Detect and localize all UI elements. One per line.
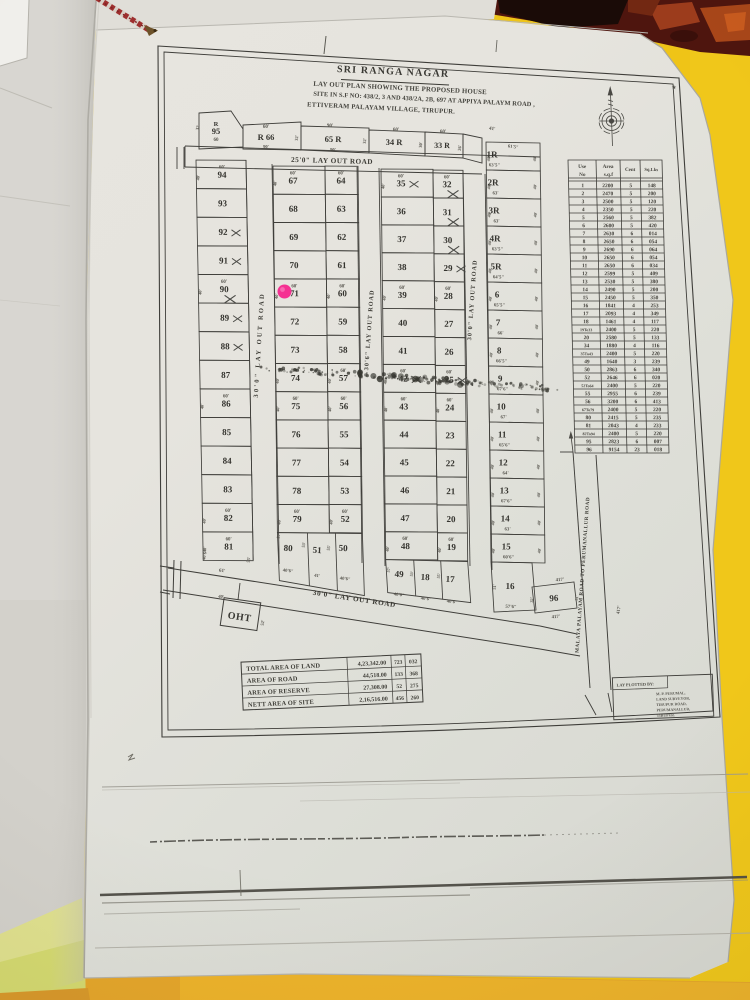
svg-text:40': 40': [276, 519, 281, 525]
svg-text:32: 32: [442, 179, 452, 189]
svg-text:40': 40': [199, 403, 204, 409]
svg-text:60': 60': [342, 510, 348, 515]
svg-text:235: 235: [653, 415, 661, 421]
svg-text:30': 30': [418, 142, 423, 148]
svg-text:5: 5: [633, 335, 636, 341]
svg-text:2650: 2650: [604, 255, 615, 261]
svg-text:3: 3: [634, 359, 637, 365]
svg-text:420: 420: [649, 223, 657, 229]
svg-text:5: 5: [632, 287, 635, 293]
svg-text:94: 94: [217, 170, 227, 180]
svg-text:40': 40': [535, 436, 541, 442]
svg-text:6: 6: [634, 367, 637, 373]
svg-text:16: 16: [505, 581, 515, 591]
svg-text:71: 71: [290, 288, 300, 298]
svg-text:82: 82: [224, 513, 234, 523]
svg-text:96: 96: [549, 593, 559, 603]
svg-text:2043: 2043: [608, 423, 619, 429]
svg-text:40': 40': [327, 378, 332, 384]
svg-text:2350: 2350: [603, 207, 614, 213]
svg-text:2200: 2200: [602, 183, 613, 189]
svg-text:96: 96: [586, 447, 592, 453]
svg-text:220: 220: [651, 327, 659, 333]
svg-text:53': 53': [409, 571, 415, 577]
svg-text:349: 349: [651, 311, 659, 317]
svg-text:40': 40': [536, 520, 542, 526]
svg-text:64: 64: [336, 175, 346, 185]
svg-text:60': 60': [291, 284, 297, 289]
svg-text:14: 14: [501, 513, 511, 523]
svg-text:2823: 2823: [608, 439, 619, 445]
svg-text:40': 40': [201, 518, 206, 524]
svg-text:86: 86: [222, 398, 232, 408]
svg-text:6: 6: [634, 375, 637, 381]
svg-text:63': 63': [504, 527, 510, 532]
svg-text:220: 220: [648, 207, 656, 213]
svg-text:56: 56: [585, 399, 591, 405]
svg-text:3: 3: [582, 199, 585, 205]
svg-text:21: 21: [446, 486, 456, 496]
svg-text:55': 55': [246, 556, 252, 563]
svg-text:82To94: 82To94: [582, 431, 594, 436]
svg-text:40': 40': [532, 212, 538, 218]
svg-text:5: 5: [629, 191, 632, 197]
svg-text:34: 34: [584, 343, 590, 349]
svg-text:2490: 2490: [605, 287, 616, 293]
svg-text:55': 55': [326, 545, 332, 551]
svg-text:2400: 2400: [606, 327, 617, 333]
svg-text:64': 64': [502, 471, 508, 476]
svg-text:018: 018: [654, 447, 662, 453]
svg-text:60': 60': [444, 175, 450, 180]
svg-text:95: 95: [586, 439, 592, 445]
svg-text:46: 46: [400, 485, 410, 495]
svg-text:40': 40': [533, 296, 539, 302]
svg-text:52: 52: [396, 684, 402, 690]
svg-text:148: 148: [648, 183, 656, 189]
svg-text:73: 73: [290, 345, 300, 355]
svg-text:32': 32': [362, 138, 367, 144]
svg-text:70: 70: [289, 260, 299, 270]
svg-text:87: 87: [221, 370, 231, 380]
svg-text:417': 417': [556, 578, 565, 584]
svg-text:40': 40': [328, 519, 333, 525]
svg-text:60': 60': [294, 510, 300, 515]
svg-text:60: 60: [214, 138, 220, 143]
svg-text:4: 4: [632, 311, 635, 317]
svg-text:66': 66': [497, 331, 503, 336]
svg-text:239: 239: [652, 359, 660, 365]
svg-text:39: 39: [398, 290, 408, 300]
svg-text:40': 40': [486, 156, 492, 162]
svg-text:40': 40': [489, 408, 495, 414]
svg-text:40': 40': [533, 268, 539, 274]
svg-text:034: 034: [650, 263, 658, 269]
svg-text:TIRUPUR.: TIRUPUR.: [657, 713, 675, 718]
svg-text:54: 54: [340, 457, 350, 467]
svg-text:53': 53': [301, 542, 307, 548]
svg-text:380: 380: [650, 279, 658, 285]
svg-text:60': 60': [447, 399, 453, 404]
svg-text:2650: 2650: [604, 239, 615, 245]
svg-text:40': 40': [435, 407, 440, 413]
svg-text:63': 63': [493, 219, 499, 224]
svg-text:60': 60': [221, 280, 227, 285]
svg-text:5: 5: [635, 431, 638, 437]
svg-text:60': 60': [293, 397, 299, 402]
svg-text:26': 26': [457, 145, 462, 151]
svg-text:67'6": 67'6": [497, 387, 509, 392]
svg-text:133: 133: [394, 672, 403, 678]
svg-text:220: 220: [652, 383, 660, 389]
svg-text:2415: 2415: [608, 415, 619, 421]
svg-text:40': 40': [487, 296, 493, 302]
svg-text:7: 7: [582, 231, 585, 237]
svg-text:28: 28: [444, 291, 454, 301]
svg-text:40': 40': [535, 464, 541, 470]
svg-text:19: 19: [447, 542, 457, 552]
svg-text:17: 17: [583, 311, 589, 317]
svg-text:409: 409: [650, 271, 658, 277]
svg-text:58: 58: [338, 345, 348, 355]
svg-text:48: 48: [401, 541, 411, 551]
svg-text:64'5": 64'5": [493, 275, 505, 280]
svg-text:51: 51: [312, 545, 322, 555]
svg-text:6: 6: [631, 263, 634, 269]
svg-text:2500: 2500: [603, 199, 614, 205]
svg-text:60': 60': [446, 371, 452, 376]
svg-text:40': 40': [490, 492, 496, 498]
svg-text:81: 81: [586, 423, 592, 429]
svg-text:67To79: 67To79: [582, 407, 594, 412]
svg-text:5: 5: [630, 215, 633, 221]
svg-text:57'6": 57'6": [505, 605, 517, 610]
svg-text:2560: 2560: [603, 215, 614, 221]
svg-text:60': 60': [341, 397, 347, 402]
svg-text:22: 22: [446, 458, 456, 468]
svg-text:57: 57: [339, 373, 349, 383]
svg-text:40': 40': [218, 594, 225, 600]
svg-text:84: 84: [223, 456, 233, 466]
svg-text:79: 79: [293, 514, 303, 524]
svg-text:1841: 1841: [605, 303, 616, 309]
svg-text:49: 49: [584, 359, 590, 365]
svg-text:19To33: 19To33: [580, 327, 592, 332]
svg-text:417': 417': [552, 615, 561, 621]
svg-text:44,518.00: 44,518.00: [363, 673, 387, 680]
svg-text:40': 40': [195, 175, 200, 181]
svg-text:65'5": 65'5": [494, 303, 506, 308]
svg-text:007: 007: [654, 439, 662, 445]
svg-text:41': 41': [314, 573, 320, 579]
svg-text:413: 413: [653, 399, 661, 405]
svg-text:2470: 2470: [602, 191, 613, 197]
svg-text:26: 26: [444, 347, 454, 357]
svg-text:40': 40': [490, 520, 496, 526]
svg-text:80: 80: [585, 415, 591, 421]
svg-text:40': 40': [275, 406, 280, 412]
svg-text:90': 90': [330, 147, 336, 152]
svg-text:368: 368: [409, 671, 418, 677]
svg-text:55: 55: [585, 391, 591, 397]
svg-text:61: 61: [337, 260, 347, 270]
svg-text:5: 5: [630, 199, 633, 205]
svg-text:24: 24: [445, 402, 455, 412]
svg-text:60': 60': [440, 130, 447, 135]
svg-text:27,308.00: 27,308.00: [363, 684, 387, 691]
svg-text:40': 40': [535, 408, 541, 414]
svg-text:200: 200: [648, 191, 656, 197]
svg-text:65 R: 65 R: [325, 134, 343, 144]
svg-text:60': 60': [398, 174, 404, 179]
svg-text:5: 5: [635, 407, 638, 413]
svg-text:220: 220: [654, 431, 662, 437]
svg-text:260: 260: [410, 695, 419, 701]
svg-text:40': 40': [380, 183, 385, 189]
svg-text:23: 23: [445, 430, 455, 440]
svg-text:40': 40': [326, 293, 331, 299]
svg-text:17: 17: [445, 574, 455, 584]
svg-text:60': 60': [448, 538, 454, 543]
svg-text:5: 5: [635, 415, 638, 421]
svg-text:69: 69: [289, 232, 299, 242]
svg-text:6: 6: [635, 439, 638, 445]
svg-text:41: 41: [398, 346, 408, 356]
svg-text:8: 8: [583, 239, 586, 245]
svg-text:723: 723: [394, 660, 403, 666]
svg-text:10: 10: [497, 401, 507, 411]
svg-text:50: 50: [338, 543, 348, 553]
svg-text:2580: 2580: [606, 335, 617, 341]
svg-text:85: 85: [222, 427, 232, 437]
svg-text:2955: 2955: [607, 391, 618, 397]
svg-text:89: 89: [220, 313, 230, 323]
svg-text:6: 6: [631, 239, 634, 245]
svg-text:40': 40': [487, 240, 493, 246]
svg-text:220: 220: [652, 351, 660, 357]
svg-text:2400: 2400: [608, 407, 619, 413]
svg-text:10: 10: [582, 255, 588, 261]
svg-text:44: 44: [399, 429, 409, 439]
svg-text:40': 40': [489, 464, 495, 470]
svg-text:2093: 2093: [605, 311, 616, 317]
svg-text:014: 014: [649, 231, 657, 237]
svg-text:52': 52': [260, 619, 266, 626]
svg-text:74: 74: [291, 373, 301, 383]
svg-text:9: 9: [583, 247, 586, 253]
svg-text:Use: Use: [578, 164, 587, 170]
svg-text:57': 57': [276, 533, 282, 539]
svg-text:7: 7: [496, 317, 501, 327]
svg-text:6: 6: [634, 391, 637, 397]
svg-text:054: 054: [649, 239, 657, 245]
svg-text:34 R: 34 R: [386, 137, 404, 147]
svg-text:064: 064: [649, 247, 657, 253]
svg-text:Cent: Cent: [625, 168, 636, 173]
svg-text:61': 61': [219, 569, 226, 575]
svg-text:Area: Area: [603, 164, 614, 170]
svg-text:60': 60': [402, 537, 408, 542]
svg-text:R 66: R 66: [258, 132, 275, 142]
svg-text:5: 5: [632, 295, 635, 301]
svg-text:18: 18: [583, 319, 589, 325]
svg-text:18: 18: [420, 572, 430, 582]
svg-text:5: 5: [633, 351, 636, 357]
svg-text:52: 52: [584, 375, 590, 381]
svg-text:2690: 2690: [604, 247, 615, 253]
svg-text:2646: 2646: [607, 375, 618, 381]
svg-text:350: 350: [650, 295, 658, 301]
svg-text:40': 40': [486, 212, 492, 218]
svg-text:40': 40': [534, 324, 540, 330]
svg-text:52: 52: [341, 514, 351, 524]
svg-text:60': 60': [393, 128, 400, 133]
svg-text:35: 35: [396, 178, 406, 188]
svg-text:2400: 2400: [607, 383, 618, 389]
svg-text:60': 60': [445, 287, 451, 292]
svg-text:40': 40': [486, 184, 492, 190]
svg-text:020: 020: [652, 375, 660, 381]
svg-text:233: 233: [653, 423, 661, 429]
svg-text:16: 16: [583, 303, 589, 309]
svg-text:2650: 2650: [604, 263, 615, 269]
svg-text:67': 67': [500, 415, 506, 420]
svg-text:60'6": 60'6": [503, 555, 515, 560]
svg-text:12: 12: [499, 457, 509, 467]
svg-text:23: 23: [634, 447, 640, 453]
svg-text:8: 8: [497, 345, 502, 355]
svg-text:No: No: [579, 172, 586, 178]
svg-text:90': 90': [327, 124, 334, 129]
svg-text:40': 40': [327, 406, 332, 412]
svg-text:52To64: 52To64: [581, 383, 593, 388]
svg-text:40': 40': [534, 352, 540, 358]
svg-text:50: 50: [584, 367, 590, 373]
svg-text:6: 6: [631, 247, 634, 253]
svg-text:40': 40': [536, 492, 542, 498]
svg-text:75: 75: [291, 401, 301, 411]
svg-text:382: 382: [648, 215, 656, 221]
svg-text:40': 40': [533, 240, 539, 246]
svg-text:1461: 1461: [605, 319, 616, 325]
svg-text:60': 60': [399, 286, 405, 291]
svg-text:133: 133: [651, 335, 659, 341]
svg-text:40': 40': [488, 352, 494, 358]
svg-text:40': 40': [275, 378, 280, 384]
svg-text:40': 40': [489, 436, 495, 442]
svg-text:90: 90: [220, 284, 230, 294]
svg-text:60: 60: [338, 288, 348, 298]
svg-text:20: 20: [446, 514, 456, 524]
svg-text:55: 55: [339, 429, 349, 439]
svg-text:40': 40': [487, 268, 493, 274]
svg-text:1880: 1880: [606, 343, 617, 349]
svg-text:9154: 9154: [609, 447, 620, 453]
svg-text:5: 5: [631, 271, 634, 277]
svg-text:275: 275: [410, 683, 419, 689]
svg-text:91: 91: [219, 255, 229, 265]
svg-text:60': 60': [401, 398, 407, 403]
svg-text:200: 200: [650, 287, 658, 293]
svg-text:83: 83: [223, 484, 233, 494]
svg-text:3200: 3200: [607, 399, 618, 405]
svg-text:5: 5: [630, 207, 633, 213]
svg-text:253: 253: [650, 303, 658, 309]
svg-text:15: 15: [502, 541, 512, 551]
svg-text:40': 40': [385, 546, 390, 552]
svg-text:120: 120: [648, 199, 656, 205]
svg-text:27: 27: [444, 319, 454, 329]
svg-text:33 R: 33 R: [434, 141, 450, 150]
svg-text:60': 60': [219, 166, 225, 171]
svg-text:4: 4: [633, 343, 636, 349]
svg-text:60': 60': [223, 394, 229, 399]
svg-text:4: 4: [632, 303, 635, 309]
svg-text:60': 60': [225, 509, 231, 514]
svg-text:220: 220: [653, 407, 661, 413]
svg-text:1: 1: [581, 183, 584, 189]
svg-text:88: 88: [221, 341, 231, 351]
svg-text:117: 117: [651, 319, 659, 325]
svg-text:5: 5: [582, 215, 585, 221]
svg-text:30: 30: [443, 235, 453, 245]
svg-text:4: 4: [635, 423, 638, 429]
svg-text:77: 77: [292, 457, 302, 467]
svg-text:29: 29: [443, 263, 453, 273]
svg-text:40': 40': [532, 184, 538, 190]
svg-text:6: 6: [634, 399, 637, 405]
svg-text:14: 14: [582, 287, 588, 293]
svg-text:13: 13: [582, 279, 588, 285]
svg-text:5: 5: [630, 223, 633, 229]
svg-text:60': 60': [338, 172, 344, 177]
svg-text:40': 40': [534, 380, 540, 386]
svg-text:6: 6: [630, 231, 633, 237]
svg-text:49: 49: [394, 569, 404, 579]
svg-text:6: 6: [495, 289, 500, 299]
svg-text:36: 36: [397, 206, 407, 216]
svg-text:92: 92: [218, 227, 228, 237]
svg-text:32': 32': [294, 135, 299, 141]
svg-text:60': 60': [226, 537, 232, 542]
svg-text:53: 53: [340, 486, 350, 496]
svg-text:5: 5: [634, 383, 637, 389]
svg-text:63'5": 63'5": [492, 247, 504, 252]
svg-text:76: 76: [291, 429, 301, 439]
svg-text:80: 80: [283, 543, 293, 553]
svg-text:116: 116: [652, 343, 660, 349]
svg-text:456: 456: [396, 696, 405, 702]
svg-text:56: 56: [339, 401, 349, 411]
svg-text:63'5": 63'5": [489, 163, 501, 168]
svg-text:81: 81: [224, 541, 234, 551]
svg-text:62: 62: [337, 232, 347, 242]
svg-text:40': 40': [488, 324, 494, 330]
svg-text:20: 20: [584, 335, 590, 341]
svg-text:2530: 2530: [604, 279, 615, 285]
svg-text:38: 38: [397, 262, 407, 272]
svg-text:054: 054: [649, 255, 657, 261]
svg-text:37: 37: [397, 234, 407, 244]
svg-text:6: 6: [631, 255, 634, 261]
svg-text:40': 40': [490, 548, 496, 554]
svg-text:93: 93: [218, 198, 228, 208]
svg-text:13: 13: [500, 485, 510, 495]
svg-text:11: 11: [582, 263, 588, 269]
svg-text:5: 5: [629, 183, 632, 189]
svg-text:63: 63: [337, 204, 347, 214]
svg-text:2630: 2630: [603, 231, 614, 237]
